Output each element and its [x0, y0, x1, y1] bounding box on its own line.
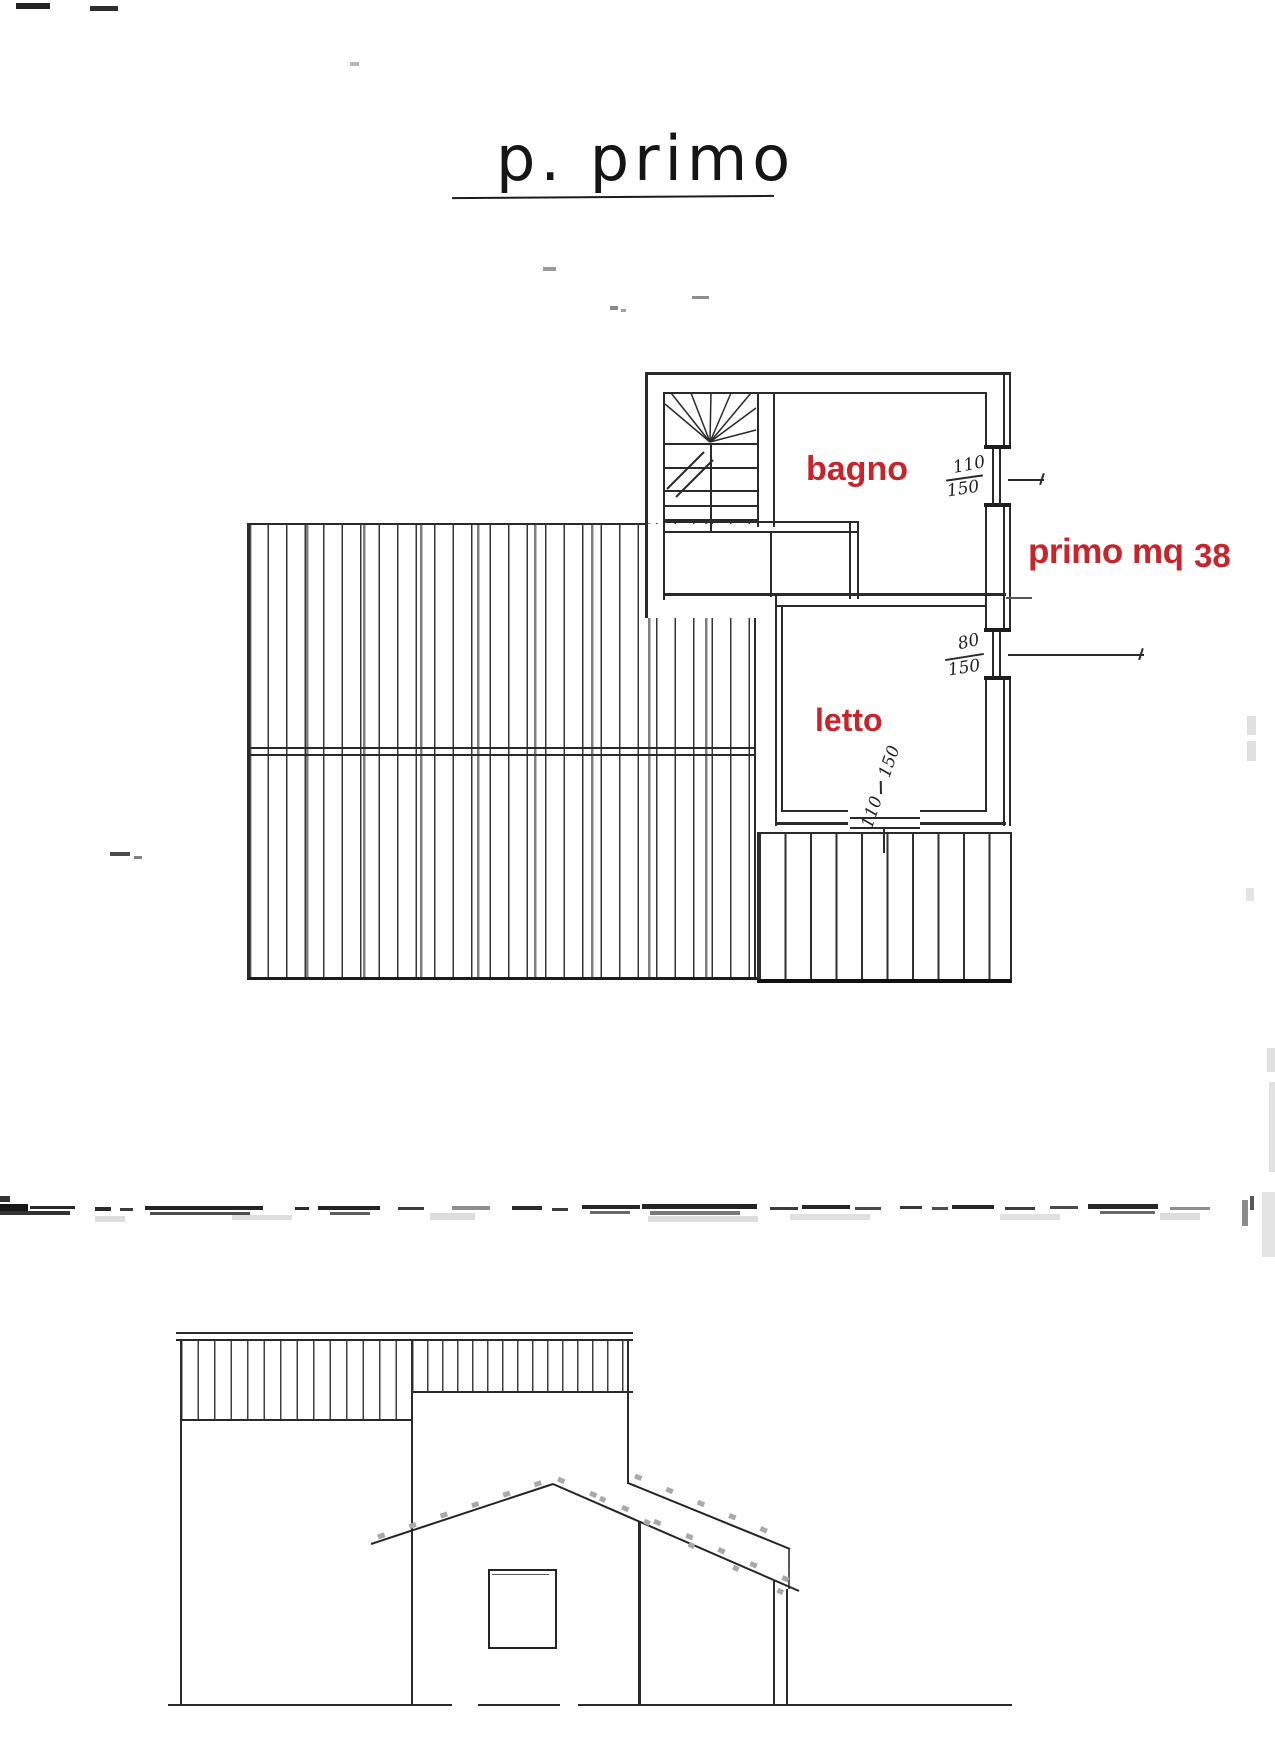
window-jamb	[984, 503, 1011, 507]
wall	[663, 521, 858, 523]
drawing-line	[95, 1207, 111, 1211]
drawing-line	[0, 1196, 10, 1202]
drawing-line	[1170, 1207, 1210, 1210]
terrace-divider	[247, 747, 755, 749]
wall	[775, 593, 777, 826]
wall	[663, 593, 775, 596]
elevation-wall	[411, 1339, 413, 1706]
porch-post	[786, 1589, 788, 1706]
wall	[1003, 372, 1005, 826]
ground-line	[168, 1704, 1012, 1706]
wall	[773, 392, 775, 527]
wall	[849, 521, 851, 599]
parapet-band-left-bottom	[181, 1419, 412, 1421]
wall	[775, 822, 848, 825]
drawing-line	[582, 1205, 640, 1209]
wall	[920, 822, 1006, 825]
drawing-line	[790, 1214, 870, 1220]
elevation-window-inner-line	[492, 1574, 549, 1575]
drawing-line	[1000, 1214, 1060, 1220]
dimension-bagno-window-height: 150	[946, 479, 981, 501]
dimension-terrace-door: 110 150	[846, 739, 916, 835]
drawing-line	[770, 1207, 798, 1210]
drawing-line	[452, 1703, 478, 1708]
drawing-line	[802, 1205, 850, 1209]
drawing-line	[95, 1216, 125, 1222]
wall	[1009, 372, 1011, 826]
drawing-line	[1100, 1211, 1155, 1214]
drawing-line	[650, 1211, 740, 1215]
dimension-line	[1008, 479, 1044, 481]
wall	[757, 392, 759, 527]
drawing-line	[0, 1204, 28, 1211]
scan-artifact	[16, 3, 50, 9]
window-glazing	[999, 449, 1001, 505]
drawing-line	[0, 1211, 70, 1215]
drawing-line	[430, 1213, 475, 1220]
porch-post	[773, 1581, 775, 1706]
window-glazing	[999, 632, 1001, 678]
window-jamb	[984, 676, 1011, 680]
roof-tick-marks	[378, 1476, 795, 1599]
drawing-line	[30, 1206, 75, 1209]
drawing-line	[1050, 1206, 1078, 1209]
dimension-terrace-door-width: 110	[859, 794, 886, 830]
drawing-line	[648, 1216, 758, 1222]
drawing-line	[1247, 741, 1256, 761]
wall	[781, 810, 848, 812]
wall	[663, 531, 858, 533]
drawing-line	[900, 1206, 922, 1209]
wall	[857, 521, 859, 599]
room-label-letto: letto	[815, 702, 883, 739]
drawing-line	[1246, 888, 1254, 901]
wall	[645, 372, 1011, 375]
title-underline	[452, 195, 774, 199]
wall	[781, 605, 783, 812]
parapet-band-right-bottom	[412, 1391, 633, 1393]
drawing-line	[1269, 1082, 1275, 1172]
scan-artifact	[350, 62, 359, 66]
scan-artifact	[692, 296, 709, 299]
parapet-band-right	[412, 1341, 633, 1392]
elevation-window	[488, 1569, 557, 1649]
drawing-line	[120, 1208, 133, 1211]
drawing-line	[512, 1206, 542, 1210]
elevation-wall	[638, 1521, 641, 1706]
dimension-extension-line	[1006, 597, 1032, 599]
drawing-line	[145, 1206, 263, 1210]
stair-center-line	[710, 443, 712, 531]
drawing-line	[398, 1207, 424, 1210]
window-jamb	[984, 445, 1011, 449]
terrace-hatch-lower-right	[757, 832, 1012, 983]
scan-artifact	[110, 852, 130, 856]
drawing-line	[1267, 1048, 1275, 1072]
dimension-fraction-bar	[880, 780, 882, 793]
stair-winder-fan	[665, 393, 756, 442]
scanned-floor-plan-page: p. primo	[0, 0, 1275, 1754]
terrace-divider	[247, 754, 755, 756]
wall	[663, 392, 665, 600]
elevation-wall	[180, 1339, 182, 1706]
window-glazing	[992, 632, 994, 678]
drawing-line	[1088, 1204, 1158, 1209]
drawing-line	[1242, 1200, 1248, 1226]
drawing-line	[642, 1204, 757, 1209]
drawing-line	[1262, 1192, 1275, 1257]
wall	[775, 593, 1006, 596]
drawing-line	[590, 1211, 630, 1214]
drawing-line	[952, 1205, 994, 1209]
area-note-label: primo mq	[1028, 532, 1183, 572]
parapet-band-left	[181, 1341, 412, 1420]
drawing-line	[552, 1208, 568, 1211]
drawing-line	[452, 1206, 490, 1210]
drawing-line	[932, 1207, 948, 1210]
drawing-line	[1005, 1207, 1035, 1210]
dimension-terrace-door-height: 150	[876, 744, 903, 780]
drawing-line	[1247, 716, 1256, 735]
drawing-line	[318, 1206, 380, 1210]
wall	[663, 392, 985, 394]
drawing-line	[1250, 1196, 1254, 1210]
dimension-letto-window-width: 80	[956, 632, 981, 653]
wall	[770, 531, 772, 597]
wall	[920, 810, 985, 812]
area-note-value: 38	[1194, 537, 1231, 575]
wall	[775, 605, 985, 607]
drawing-line	[1160, 1213, 1200, 1220]
drawing-line	[982, 447, 1013, 507]
roof-lines	[371, 1483, 799, 1591]
scan-artifact	[543, 267, 556, 271]
dimension-line	[1008, 654, 1144, 656]
scan-artifact	[621, 309, 626, 312]
parapet-top-line	[176, 1332, 633, 1334]
window-jamb	[984, 628, 1011, 632]
room-label-bagno: bagno	[806, 450, 908, 489]
scan-artifact	[134, 856, 142, 859]
scan-artifact	[90, 6, 118, 11]
elevation-wall	[627, 1339, 629, 1484]
dimension-letto-window-height: 150	[947, 658, 982, 680]
page-title: p. primo	[496, 122, 795, 195]
wall	[645, 372, 648, 618]
drawing-line	[560, 1703, 578, 1708]
drawing-line	[232, 1215, 292, 1220]
window-glazing	[992, 449, 994, 505]
drawing-line	[855, 1207, 881, 1210]
terrace-top-edge	[247, 523, 647, 525]
drawing-line	[295, 1207, 309, 1210]
drawing-line	[330, 1212, 370, 1215]
scan-artifact	[610, 306, 618, 310]
terrace-right-edge	[754, 618, 756, 977]
